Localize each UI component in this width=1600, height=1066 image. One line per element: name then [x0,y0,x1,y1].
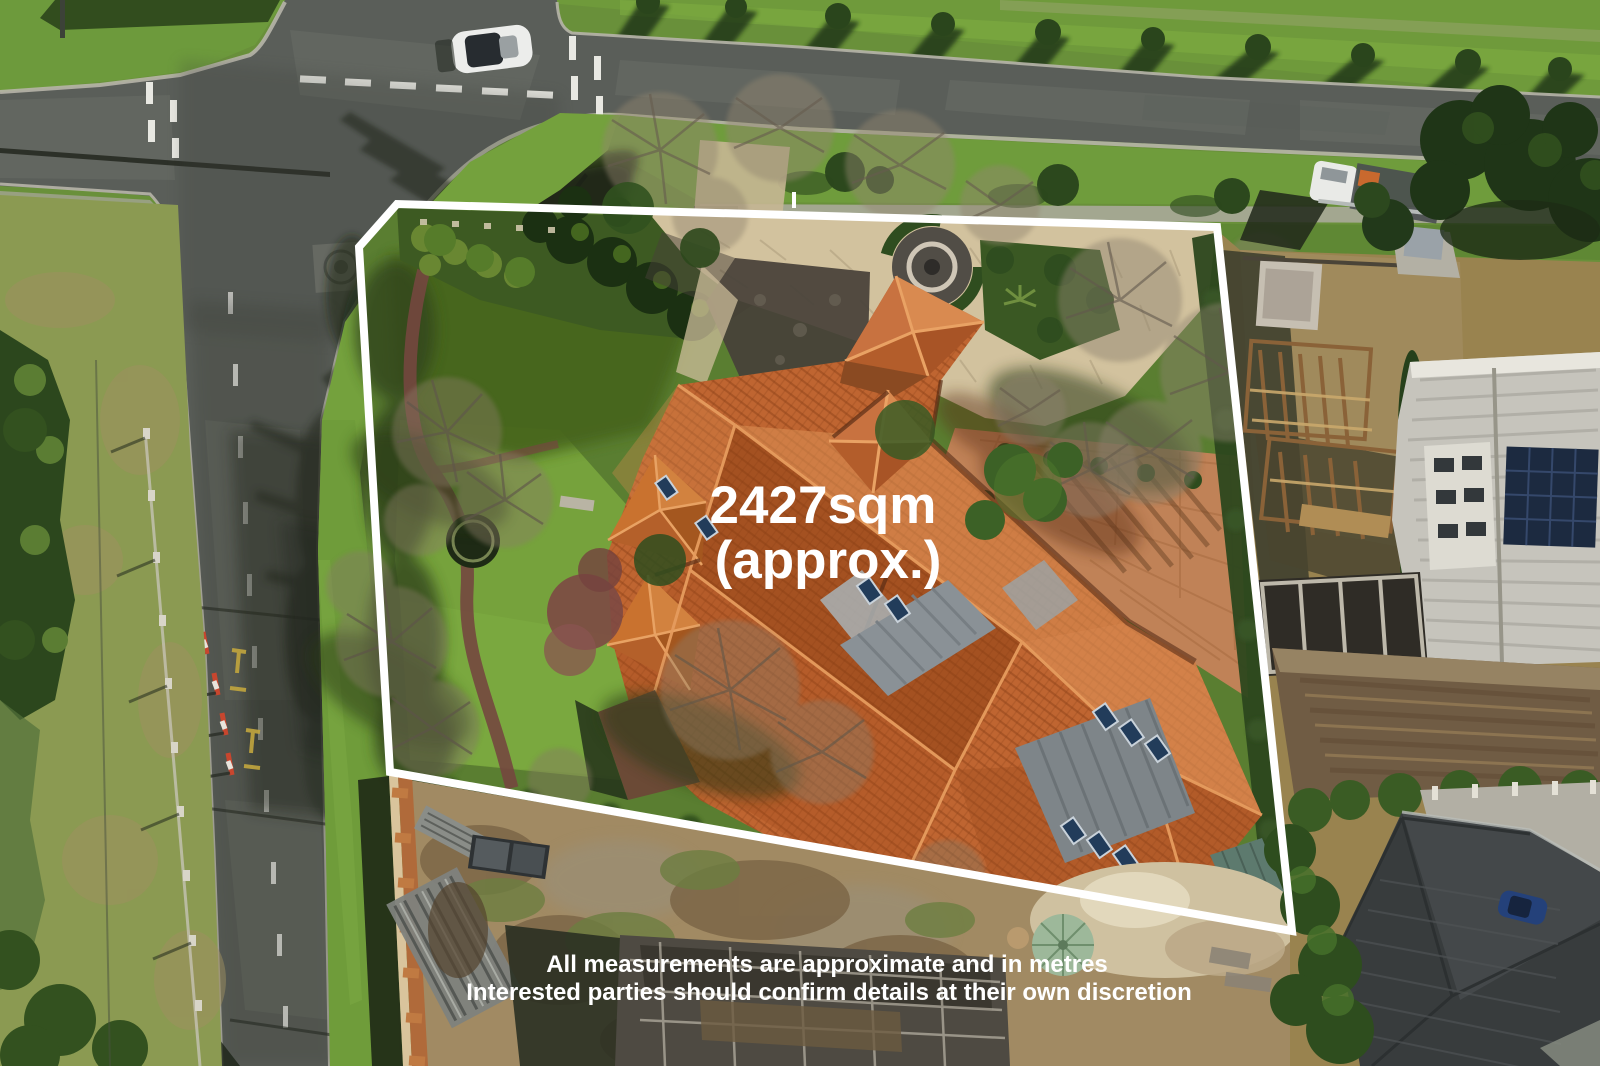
svg-text:2427sqm: 2427sqm [710,476,937,535]
svg-text:Interested parties should conf: Interested parties should confirm detail… [466,979,1191,1006]
svg-text:(approx.): (approx.) [715,531,942,590]
svg-text:All measurements are approxima: All measurements are approximate and in … [546,951,1108,978]
